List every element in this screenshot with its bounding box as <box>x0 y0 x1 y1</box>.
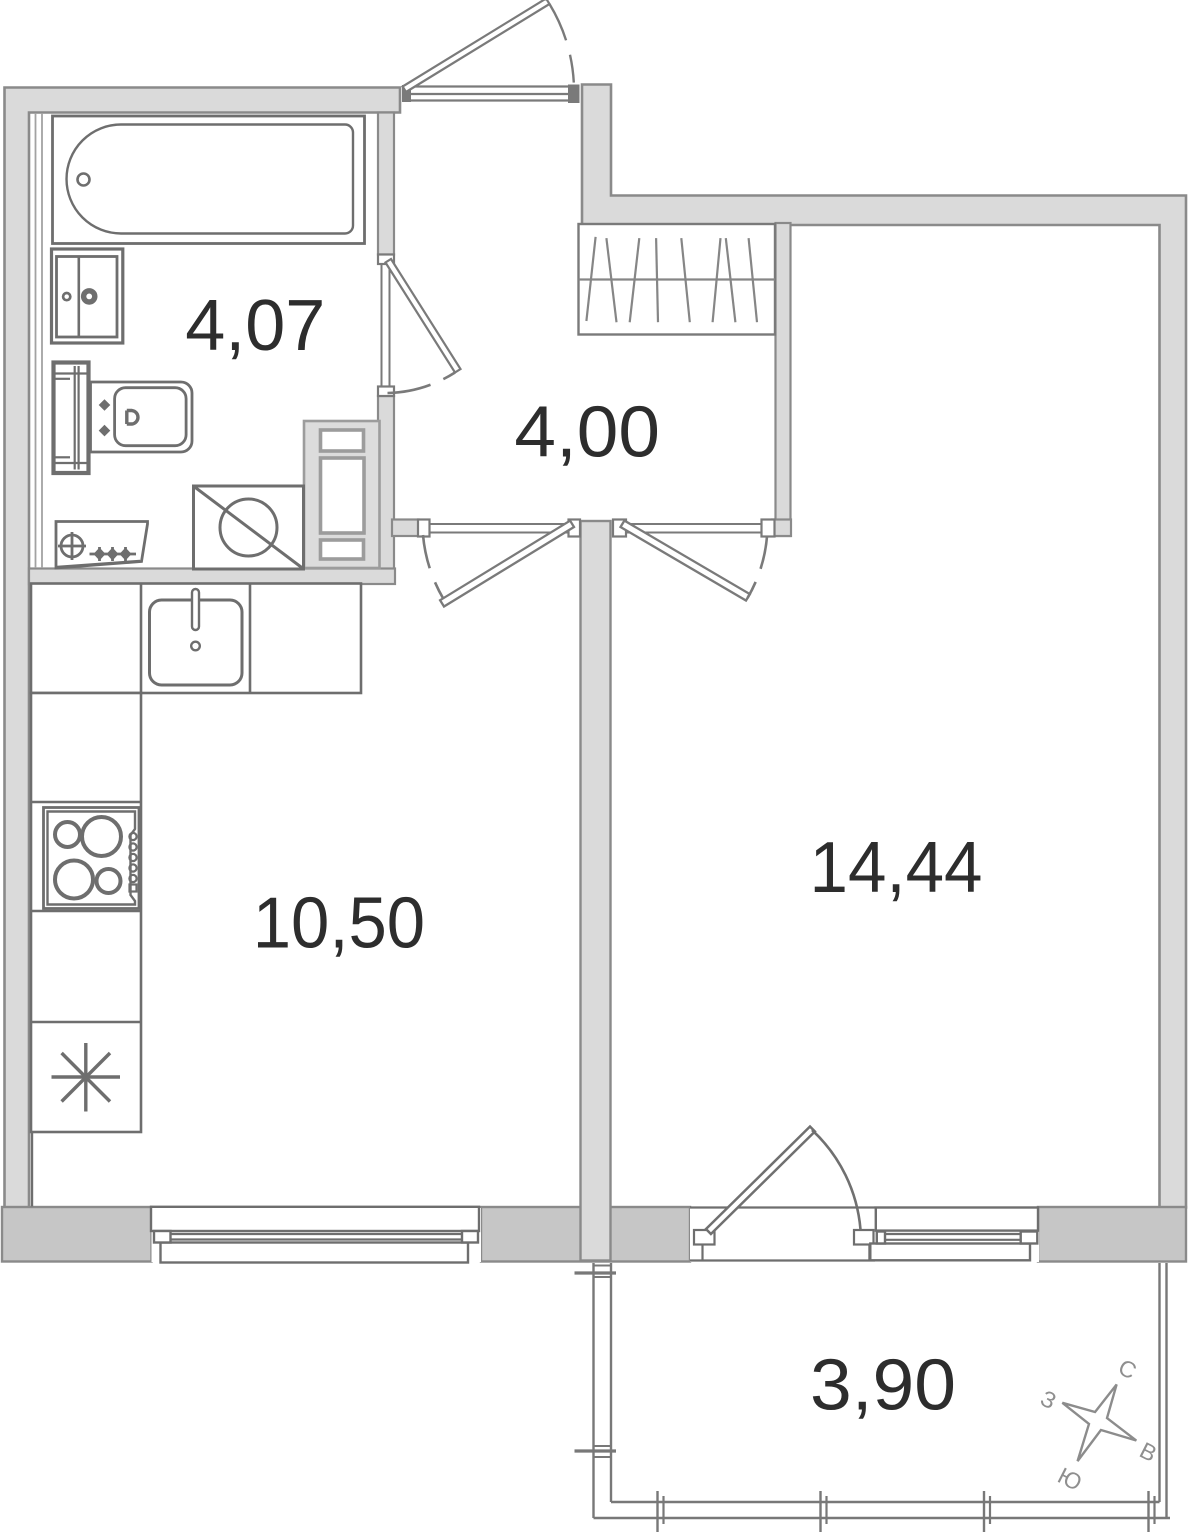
svg-text:З: З <box>1036 1385 1060 1414</box>
svg-text:3,90: 3,90 <box>810 1345 956 1425</box>
svg-text:Ю: Ю <box>1054 1462 1087 1496</box>
svg-text:С: С <box>1114 1354 1141 1385</box>
svg-text:4,07: 4,07 <box>185 286 325 366</box>
svg-text:10,50: 10,50 <box>253 883 425 963</box>
svg-text:14,44: 14,44 <box>810 828 983 908</box>
svg-text:4,00: 4,00 <box>514 393 660 473</box>
svg-text:В: В <box>1136 1437 1161 1467</box>
